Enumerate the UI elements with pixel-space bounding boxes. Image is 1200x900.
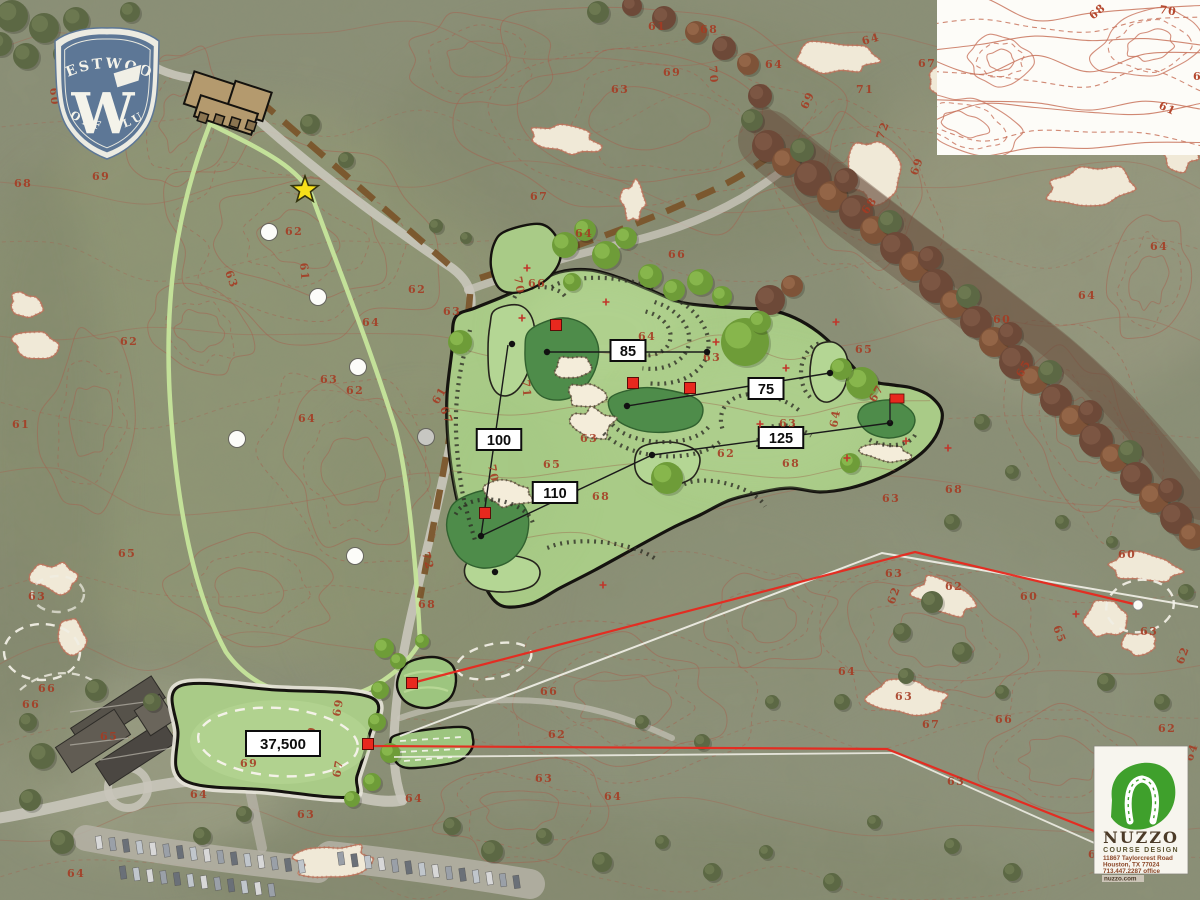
elevation-label: 61 (648, 20, 666, 33)
svg-text:85: 85 (620, 344, 636, 360)
svg-text:110: 110 (543, 486, 566, 502)
inset-background (937, 0, 1200, 155)
tree-circle-marker (310, 289, 327, 306)
elevation-label: 63 (28, 590, 46, 603)
elevation-label: 66 (528, 277, 546, 290)
elevation-label: 64 (1078, 289, 1096, 302)
target-green-dot (1133, 600, 1143, 610)
elevation-label: 64 (838, 665, 856, 678)
elevation-label: 67 (922, 718, 940, 731)
elevation-label: 66 (668, 248, 686, 261)
elevation-label: 63 (611, 83, 629, 96)
elevation-label: 62 (1158, 722, 1176, 735)
elevation-label: 64 (298, 412, 316, 425)
elevation-label: 69 (92, 170, 110, 183)
elevation-label: 68 (14, 177, 32, 190)
elevation-label: 71 (856, 83, 874, 96)
elevation-label: 64 (405, 792, 423, 805)
elevation-label: 65 (118, 547, 136, 560)
elevation-label: 63 (1140, 625, 1158, 638)
elevation-label: 67 (918, 57, 936, 70)
elevation-label: 60 (993, 313, 1011, 326)
elevation-label: 62 (717, 447, 735, 460)
measure-point-dot (544, 349, 550, 355)
measure-point-dot (704, 349, 710, 355)
tree-circle-marker (347, 548, 364, 565)
elevation-label: 63 (947, 775, 965, 788)
elevation-label: 64 (604, 790, 622, 803)
designer-brand: NUZZO (1103, 828, 1179, 847)
svg-text:125: 125 (769, 431, 793, 447)
golf-course-master-plan: 8575100110125616869637064646771697269686… (0, 0, 1200, 900)
tree-circle-marker (229, 431, 246, 448)
elevation-label: 68 (592, 490, 610, 503)
elevation-label: 70 (706, 65, 721, 84)
elevation-label: 64 (765, 58, 783, 71)
inset-elevation-label: 6 (1193, 70, 1200, 83)
elevation-label: 68 (700, 23, 718, 36)
designer-phone: 713.447.2287 office (1103, 868, 1161, 875)
tree-circle-marker (261, 224, 278, 241)
elevation-label: 68 (945, 483, 963, 496)
elevation-label: 62 (548, 728, 566, 741)
inset-elevation-label: 70 (1159, 3, 1178, 18)
range-square-footage: 37,500 (260, 736, 306, 753)
elevation-label: 62 (346, 384, 364, 397)
measure-point-dot (827, 370, 833, 376)
measure-point-dot (649, 452, 655, 458)
elevation-label: 71 (519, 379, 534, 398)
elevation-label: 64 (67, 867, 85, 880)
red-tee-marker (363, 739, 374, 750)
measure-point-dot (509, 341, 515, 347)
elevation-label: 62 (120, 335, 138, 348)
elevation-label: 63 (882, 492, 900, 505)
elevation-label: 68 (418, 598, 436, 611)
elevation-label: 64 (190, 788, 208, 801)
elevation-label: 65 (543, 458, 561, 471)
nuzzo-designer-box: NUZZO COURSE DESIGN 11867 Taylorcrest Ro… (1094, 746, 1188, 883)
measure-point-dot (478, 533, 484, 539)
red-tee-marker (407, 678, 418, 689)
elevation-label: 68 (782, 457, 800, 470)
elevation-label: 63 (297, 808, 315, 821)
elevation-label: 64 (362, 316, 380, 329)
gray-circle-marker (418, 429, 435, 446)
elevation-label: 66 (38, 682, 56, 695)
red-tee-marker (551, 320, 562, 331)
elevation-label: 63 (779, 417, 797, 430)
measure-point-dot (492, 569, 498, 575)
elevation-label: 66 (22, 698, 40, 711)
elevation-label: 63 (885, 567, 903, 580)
elevation-label: 62 (945, 580, 963, 593)
tree-circle-marker (350, 359, 367, 376)
elevation-label: 67 (530, 190, 548, 203)
elevation-label: 64 (638, 330, 656, 343)
elevation-label: 62 (408, 283, 426, 296)
elevation-label: 69 (240, 757, 258, 770)
red-tee-marker (480, 508, 491, 519)
elevation-label: 63 (580, 432, 598, 445)
elevation-label: 65 (855, 343, 873, 356)
elevation-label: 63 (443, 305, 461, 318)
elevation-label: 65 (100, 730, 118, 743)
elevation-label: 60 (1020, 590, 1038, 603)
elevation-label: 61 (12, 418, 30, 431)
elevation-label: 60 (1118, 548, 1136, 561)
elevation-label: 69 (663, 66, 681, 79)
elevation-label: 63 (320, 373, 338, 386)
measure-point-dot (624, 403, 630, 409)
elevation-label: 62 (285, 225, 303, 238)
flag-icon (890, 394, 904, 403)
designer-website: nuzzo.com (1104, 876, 1137, 883)
elevation-label: 64 (575, 227, 593, 240)
red-tee-marker (628, 378, 639, 389)
elevation-label: 63 (535, 772, 553, 785)
elevation-label: 66 (540, 685, 558, 698)
red-tee-marker (685, 383, 696, 394)
elevation-label: 66 (995, 713, 1013, 726)
range-area-label: 37,500 (246, 731, 320, 756)
designer-tagline: COURSE DESIGN (1103, 847, 1179, 854)
elevation-label: 64 (1150, 240, 1168, 253)
svg-text:100: 100 (487, 433, 511, 449)
elevation-label: 63 (895, 690, 913, 703)
contour-inset-map: 6870661 (907, 0, 1200, 158)
elevation-label: 61 (297, 262, 312, 281)
svg-text:75: 75 (758, 382, 774, 398)
